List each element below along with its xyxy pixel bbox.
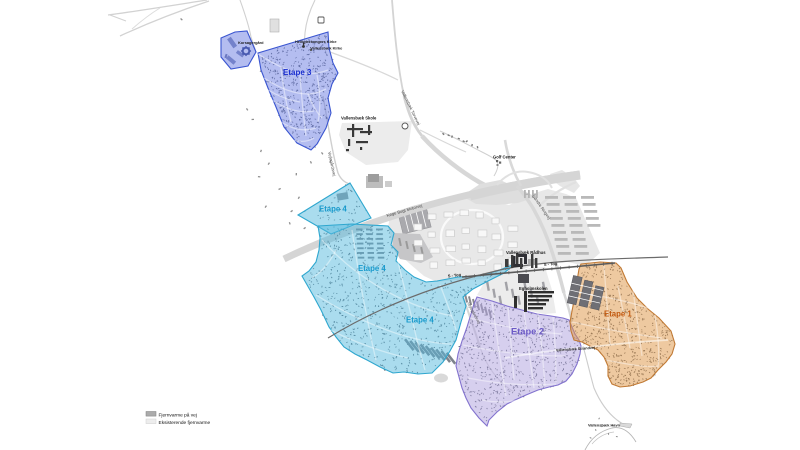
svg-text:.Vallensbæk Kirke: .Vallensbæk Kirke: [309, 46, 343, 51]
svg-text:Egholmskolen: Egholmskolen: [519, 286, 548, 291]
svg-text:Etape 4: Etape 4: [358, 264, 386, 273]
svg-text:Vallensbæk Rådhus: Vallensbæk Rådhus: [506, 250, 546, 255]
svg-text:Korsagergård: Korsagergård: [238, 40, 264, 45]
svg-text:Helligtrekongers Kirke: Helligtrekongers Kirke: [295, 39, 337, 44]
svg-text:Etape 3: Etape 3: [283, 68, 312, 77]
svg-text:Etape 2: Etape 2: [511, 327, 544, 337]
svg-text:Etape 4: Etape 4: [406, 316, 434, 325]
svg-text:Vallensbæk Skole: Vallensbæk Skole: [341, 116, 377, 121]
svg-text:Fjernvarme på vej: Fjernvarme på vej: [159, 412, 197, 419]
svg-text:Etape 1: Etape 1: [604, 310, 632, 319]
svg-text:Golf Center: Golf Center: [493, 155, 516, 160]
svg-text:Etape 4: Etape 4: [319, 205, 347, 214]
svg-text:Eksisterende fjernvarme: Eksisterende fjernvarme: [159, 420, 211, 426]
svg-text:Vallensbæk Havn: Vallensbæk Havn: [588, 423, 621, 428]
